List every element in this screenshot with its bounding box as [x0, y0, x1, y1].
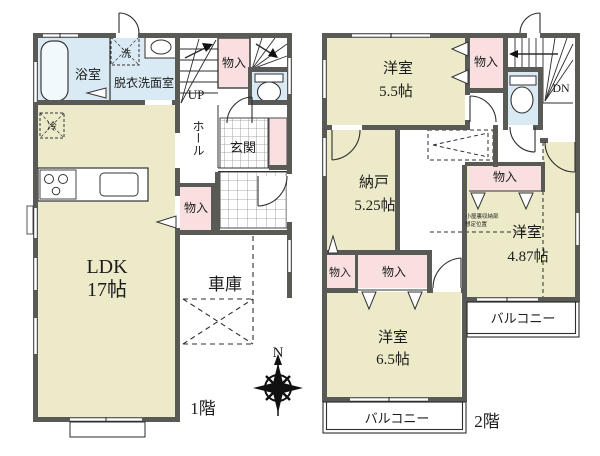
- label-west1-size: 5.5帖: [379, 83, 413, 100]
- label-west2-size: 4.87帖: [507, 248, 548, 265]
- label-attic-note-2: 想定位置: [465, 220, 488, 228]
- label-hall: ホール: [191, 120, 205, 156]
- label-west1-name: 洋室: [383, 60, 413, 77]
- label-closet-west3-b: 物入: [382, 265, 406, 279]
- label-closet-stairs-1f: 物入: [222, 56, 246, 70]
- label-west2-name: 洋室: [512, 224, 542, 241]
- label-compass-north: N: [273, 345, 284, 361]
- label-balcony-bottom: バルコニー: [365, 411, 430, 426]
- label-entrance: 玄関: [230, 140, 256, 155]
- label-ldk-size: 17帖: [87, 278, 127, 301]
- label-stairs-down: DN: [552, 81, 570, 95]
- label-closet-hall-1f: 物入: [184, 201, 208, 215]
- room-west1: [327, 38, 465, 125]
- label-stairs-up: UP: [188, 87, 205, 102]
- label-storage-name: 納戸: [359, 174, 389, 191]
- label-closet-west3-a: 物入: [329, 265, 351, 279]
- toilet-1f-icon: [255, 74, 283, 102]
- floor2-plan: [322, 13, 580, 433]
- label-fridge: 冷: [47, 120, 57, 133]
- compass-rose-icon: [253, 354, 303, 416]
- label-west3-size: 6.5帖: [376, 351, 410, 368]
- kitchen-counter-icon: [38, 168, 148, 201]
- porch-step: [70, 422, 145, 437]
- label-washroom: 脱衣洗面室: [114, 75, 174, 90]
- label-floor1: 1階: [190, 399, 216, 418]
- floor-plan-canvas: 浴室 脱衣洗面室 洗 冷 UP 物入 ホール 玄関 物入 LDK 17帖 車庫 …: [0, 0, 600, 456]
- label-attic-note-1: 小屋裏収納部: [465, 212, 499, 220]
- bathtub-icon: [41, 41, 68, 101]
- label-bath: 浴室: [75, 67, 101, 82]
- label-garage: 車庫: [208, 275, 242, 294]
- label-ldk-name: LDK: [86, 256, 128, 278]
- label-balcony-right: バルコニー: [491, 311, 556, 326]
- label-floor2: 2階: [474, 412, 500, 431]
- label-storage-size: 5.25帖: [354, 197, 395, 214]
- label-closet-top-2f: 物入: [474, 55, 498, 69]
- label-washer: 洗: [121, 48, 131, 60]
- shoe-closet: [269, 118, 287, 168]
- floor-plan-drawing: 浴室 脱衣洗面室 洗 冷 UP 物入 ホール 玄関 物入 LDK 17帖 車庫 …: [0, 0, 600, 456]
- label-closet-west2: 物入: [493, 170, 517, 184]
- washbasin-icon: [145, 36, 177, 58]
- label-west3-name: 洋室: [378, 329, 408, 346]
- stair-arrow-down-icon: [509, 50, 518, 58]
